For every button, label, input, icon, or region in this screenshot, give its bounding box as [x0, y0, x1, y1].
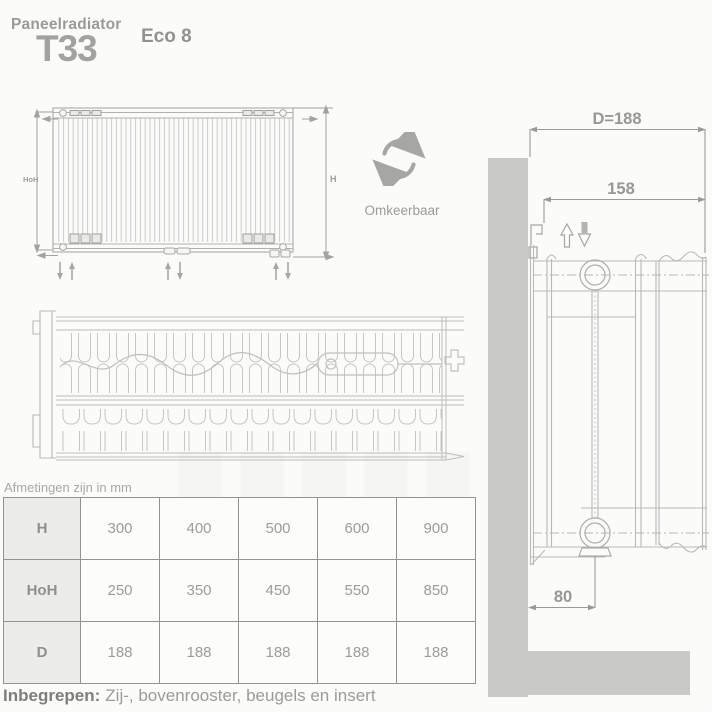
row-header: D — [4, 622, 81, 684]
h-dimension — [293, 106, 333, 260]
cross-section-drawing — [18, 303, 478, 463]
table-cell: 350 — [160, 560, 239, 622]
center-lines — [533, 275, 709, 533]
row-header: HoH — [4, 560, 81, 622]
arrow-up-icon — [561, 224, 573, 247]
table-cell: 188 — [81, 622, 160, 684]
reversible-icon — [372, 132, 426, 186]
h-label: H — [330, 174, 337, 184]
included-text: Zij-, bovenrooster, beugels en insert — [105, 686, 375, 705]
table-cell: 188 — [160, 622, 239, 684]
table-cell: 188 — [318, 622, 397, 684]
inner-width-dim-label: 158 — [607, 180, 635, 198]
table-cell: 188 — [239, 622, 318, 684]
table-row: D 188 188 188 188 188 — [4, 622, 476, 684]
convector-fins-lower — [60, 409, 442, 451]
product-series: Eco 8 — [141, 26, 192, 48]
radiator-front-body — [53, 108, 293, 257]
hoh-dimension — [35, 110, 59, 258]
hoh-label: HoH — [23, 175, 38, 184]
table-cell: 600 — [318, 498, 397, 560]
table-cell: 850 — [397, 560, 476, 622]
table-cell: 500 — [239, 498, 318, 560]
wall — [488, 158, 528, 697]
table-cell: 450 — [239, 560, 318, 622]
depth-dim-label: D=188 — [592, 110, 641, 128]
section-end-cap-left — [33, 311, 56, 458]
table-cell: 250 — [81, 560, 160, 622]
floor — [528, 651, 690, 695]
table-row: HoH 250 350 450 550 850 — [4, 560, 476, 622]
radiator-side-profile — [530, 245, 707, 565]
wall-offset-dim-label: 80 — [554, 588, 572, 606]
inner-width-dimension — [543, 197, 706, 223]
plus-connector — [445, 350, 464, 371]
table-row: H 300 400 500 600 900 — [4, 498, 476, 560]
included-note: Inbegrepen:Zij-, bovenrooster, beugels e… — [3, 686, 376, 706]
table-caption: Afmetingen zijn in mm — [4, 480, 132, 495]
arrow-down-icon — [579, 222, 591, 246]
datasheet-page: Paneelradiator T33 Eco 8 — [0, 0, 712, 712]
table-cell: 300 — [81, 498, 160, 560]
side-view-drawing: D=188 158 — [485, 95, 712, 712]
table-cell: 550 — [318, 560, 397, 622]
table-cell: 400 — [160, 498, 239, 560]
row-header: H — [4, 498, 81, 560]
front-view-drawing: HoH H — [18, 98, 340, 290]
table-cell: 900 — [397, 498, 476, 560]
product-model: T33 — [36, 28, 97, 70]
flow-arrows — [57, 262, 291, 280]
table-cell: 188 — [397, 622, 476, 684]
included-label: Inbegrepen: — [3, 686, 100, 705]
dimensions-table: H 300 400 500 600 900 HoH 250 350 450 55… — [3, 497, 476, 684]
reversible-label: Omkeerbaar — [348, 203, 456, 218]
